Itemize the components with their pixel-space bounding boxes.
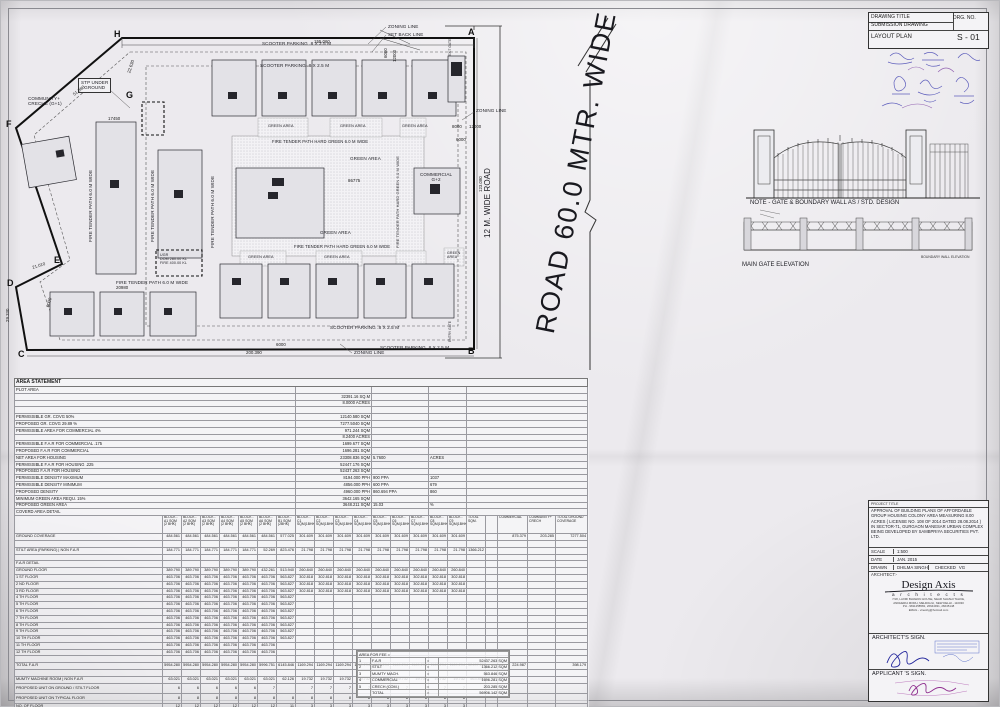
road-12m-label: 12 M. WIDE ROAD [483,168,492,238]
checked-value: VG [956,565,965,570]
table-row: 1 ST FLOOR463.706463.706463.706463.70646… [15,574,588,581]
title-block: DRAWING TITLE SUBMISSION DRAWING DRG. NO… [868,12,989,49]
table-row: 5 TH FLOOR463.706463.706463.706463.70646… [15,602,588,609]
table-row: PROPOSED GR. COVG 29.89 %7277.5040 SQM [15,420,588,427]
table-row: TOTAL=56906.142 SQM [358,690,509,696]
green-area-label: GREEN AREA [402,124,428,128]
scale-value: 1:500 [894,549,908,554]
corner-H: H [114,29,121,39]
table-row: GROUND FLOOR389.790389.790389.790389.790… [15,568,588,575]
area-for-fee-box: AREA FOR FEE =1F.A.R=52437.263 SQM2STILT… [356,650,510,698]
area-statement-table: AREA STATEMENTPLOT AREA32391.16 SQ.M8.00… [14,378,589,707]
green-area-label: GREEN AREA [340,124,366,128]
applicant-signature-stamp [887,677,977,699]
fire-tender-path-label: FIRE TENDER PATH 6.0 M WIDE [210,176,215,248]
corner-F: F [6,119,12,129]
green-area-label: GREEN AREA [268,124,294,128]
table-row: 9 TH FLOOR463.706463.706463.706463.70646… [15,629,588,636]
table-row: PROPOSED DENSITY4960.000 PPH860.694 PPA8… [15,488,588,495]
table-row: 3 RD FLOOR463.706463.706463.706463.70646… [15,588,588,595]
table-row [15,407,588,414]
dimension: 29.330 [5,309,10,322]
ugr-label: UGR DOM 280.00 KL FIRE 400.00 KL [160,253,187,265]
zoning-line-label: ZONING LINE [476,108,506,113]
table-row: 7 TH FLOOR463.706463.706463.706463.70646… [15,615,588,622]
architect-signature-stamp [873,639,985,669]
table-row: 8.0000 ACRES [15,400,588,407]
dimension: 86775 [348,178,360,183]
table-row [15,540,588,547]
table-row: COVERD AREA DETAIL [15,509,588,516]
table-row: AREA STATEMENT [15,379,588,387]
corner-B: B [468,346,475,356]
fire-tender-path-label: FIRE TENDER PATH HARD GREEN 6.0 M WIDE [272,140,368,145]
dimension: 6000 [456,137,466,142]
table-row: 8 TH FLOOR463.706463.706463.706463.70646… [15,622,588,629]
table-row: 2 ND FLOOR463.706463.706463.706463.70646… [15,581,588,588]
table-row: MINIMUM GREEN AREA REQU. 15%3642.165 SQM [15,495,588,502]
green-area-label: GREEN AREA [324,255,350,259]
table-row: F.A.R DETAIL [15,561,588,568]
corner-G: G [126,90,133,100]
commercial-label: COMMERCIAL G+2 [420,172,452,183]
table-row: 10 TH FLOOR463.706463.706463.706463.7064… [15,636,588,643]
dimension: 6000 [276,342,286,347]
main-gate-drawing [740,118,988,278]
table-row: PERMISSIBLE F.A.R FOR COMMERCIAL .175169… [15,441,588,448]
drg-no-label: DRG. NO. [953,14,986,30]
scanned-drawing-sheet: ZONING LINE SET BACK LINE SCOOTER PARKIN… [0,0,1000,707]
green-area-label: GREEN AREA [248,255,274,259]
dimension: 123.080 [478,176,483,192]
fire-tender-path-label: FIRE TENDER PATH HARD GREEN 6.0 M WIDE [294,245,390,250]
table-row: PROPOSED GREEN AREA3648.211 SQM15.03% [15,502,588,509]
fee-table: AREA FOR FEE =1F.A.R=52437.263 SQM2STILT… [357,651,509,697]
main-gate-elevation-label: MAIN GATE ELEVATION [742,262,809,268]
table-row: NO. OF FLOOR12121212121211333333333 [15,703,588,707]
green-area-label: GREEN AREA [350,156,381,161]
dimension: 20980 [116,285,128,290]
architect-firm-logo: Design Axis a r c h i t e c t s 7/18, LA… [869,579,988,613]
community-creche-label: COMMUNITY+ CRECHE (G+1) [28,96,62,107]
boundary-wall-elevation-label: BOUNDARY WALL ELEVATION [921,255,970,259]
scale-label: SCALE [869,549,894,554]
architect-label: ARCHITECT:- [869,571,988,577]
dimension: 155.060 [314,39,330,44]
table-row: PLOT AREA [15,387,588,394]
drawing-number: S - 01 [957,32,980,42]
table-row: 11 TH FLOOR463.706463.706463.706463.7064… [15,642,588,649]
table-row: 6 TH FLOOR463.706463.706463.706463.70646… [15,608,588,615]
table-row: PERMISSIBLE F.A.R FOR HOUSING .22552447.… [15,461,588,468]
zoning-line-label: ZONING LINE [354,350,384,355]
entry-gate-label: ENTRY GATE [449,321,453,342]
table-row: 8.2400 ACRES [15,434,588,441]
fire-tender-path-label: FIRE TENDER PATH 6.0 M WIDE [150,170,155,242]
checked-label: CHECKED [928,565,956,570]
table-row: 4 TH FLOOR463.706463.706463.706463.70646… [15,595,588,602]
date-label: DATE [869,557,894,562]
green-area-label: GREEN AREA [320,230,351,235]
table-row: GROUND COVERAGE484.561484.561484.561484.… [15,534,588,541]
project-title-label: PROJECT TITLE [869,501,988,506]
table-row: PERMISSIBLE GR. COVG 50%12140.580 SQM [15,414,588,421]
exit-gate-label: EXIT GATE [449,39,453,56]
table-row: PERMISSIBLE DENSITY MINIMUM4856.000 PPH6… [15,482,588,489]
approval-ink-stamps [872,48,987,113]
dimension: 12000 [392,50,397,62]
setback-line-label: SET BACK LINE [388,32,423,37]
drawn-value: DHILMA SINGH [894,565,928,570]
dimension: 17450 [108,116,120,121]
corner-A: A [468,27,475,37]
fire-tender-path-label: FIRE TENDER PATH HARD GREEN 6.0 M WIDE [396,156,401,248]
submission-drawing-label: SUBMISSION DRAWING [869,21,954,31]
table-row: PERMISSIBLE AREA FOR COMMERCIAL 4%971.24… [15,427,588,434]
scooter-parking-label: SCOOTER PARKING .8 X 2.5 M [330,325,399,330]
fire-tender-path-label: FIRE TENDER PATH 6.0 M WIDE [88,170,93,242]
table-row: PROPOSED F.A.R FOR HOUSING52437.263 SQM [15,468,588,475]
drawn-label: DRAWN [869,565,894,570]
table-row: BLOCK -A1 SQM (2 BHK)BLOCK -A2 SQM (2 BH… [15,516,588,534]
applicants-sign-label: APPLICANT 'S SIGN. [869,669,988,677]
dimension: 200.390 [246,350,262,355]
scooter-parking-label: SCOOTER PARKING .8 X 2.5 M [260,63,329,68]
gate-note: NOTE - GATE & BOUNDARY WALL AS / STD. DE… [750,200,899,206]
gate-elevation-area: NOTE - GATE & BOUNDARY WALL AS / STD. DE… [740,118,988,278]
scooter-parking-label: SCOOTER PARKING .8 X 2.5 M [380,345,449,350]
table-row: PERMISSIBLE DENSITY MAXIMUM8194.000 PPH9… [15,475,588,482]
green-area-label: GREEN AREA [447,251,460,259]
table-row: 32391.16 SQ.M [15,393,588,400]
date-value: JAN. 2015 [894,557,917,562]
table-row: PROPOSED F.A.R FOR COMMERCIAL1696.281 SQ… [15,448,588,455]
project-info-block: PROJECT TITLE APPROVAL OF BUILDING PLANS… [868,500,989,702]
zoning-line-label: ZONING LINE [388,24,418,29]
corner-C: C [18,349,25,359]
firm-address-4: EMAIL - vineshg@hotmail.com [869,609,988,613]
table-row [15,554,588,561]
corner-D: D [7,278,14,288]
layout-plan-label: LAYOUT PLAN [871,34,912,40]
corner-E: E [54,255,60,265]
project-description: APPROVAL OF BUILDING PLANS OF AFFORDABLE… [869,507,988,541]
table-row: STILT AREA (PARKING) | NON F.A.R184.7711… [15,547,588,554]
table-row: NET AREA FOR HOUSING23308.836 SQM5.7600A… [15,454,588,461]
dimension: 6000 [383,48,388,58]
dimension: 12000 [469,124,481,129]
dimension: 8000 [452,124,462,129]
